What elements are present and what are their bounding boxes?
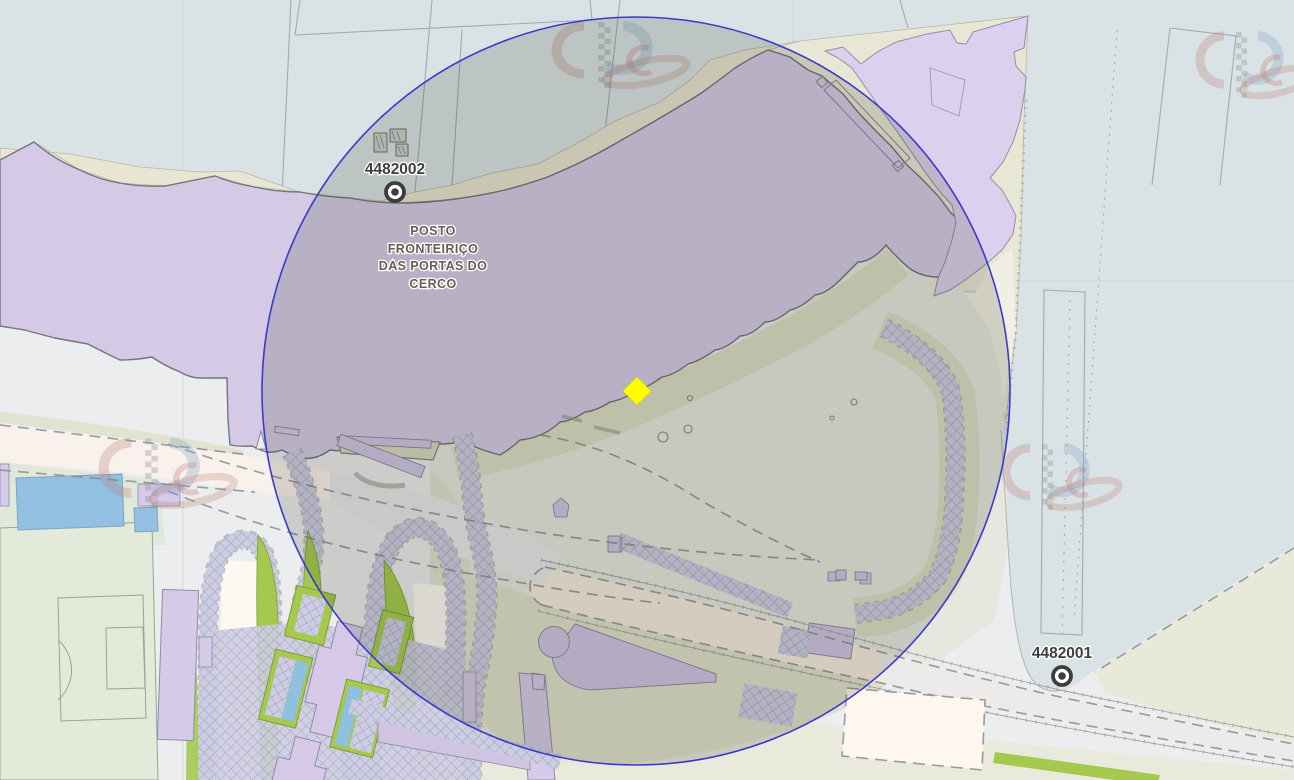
svg-text:DAS PORTAS DO: DAS PORTAS DO: [379, 259, 487, 273]
svg-text:POSTO: POSTO: [410, 224, 456, 238]
svg-text:4482001: 4482001: [1032, 645, 1093, 662]
svg-text:4482002: 4482002: [365, 161, 425, 178]
svg-text:CERCO: CERCO: [409, 277, 456, 291]
svg-text:FRONTEIRIÇO: FRONTEIRIÇO: [388, 242, 479, 256]
